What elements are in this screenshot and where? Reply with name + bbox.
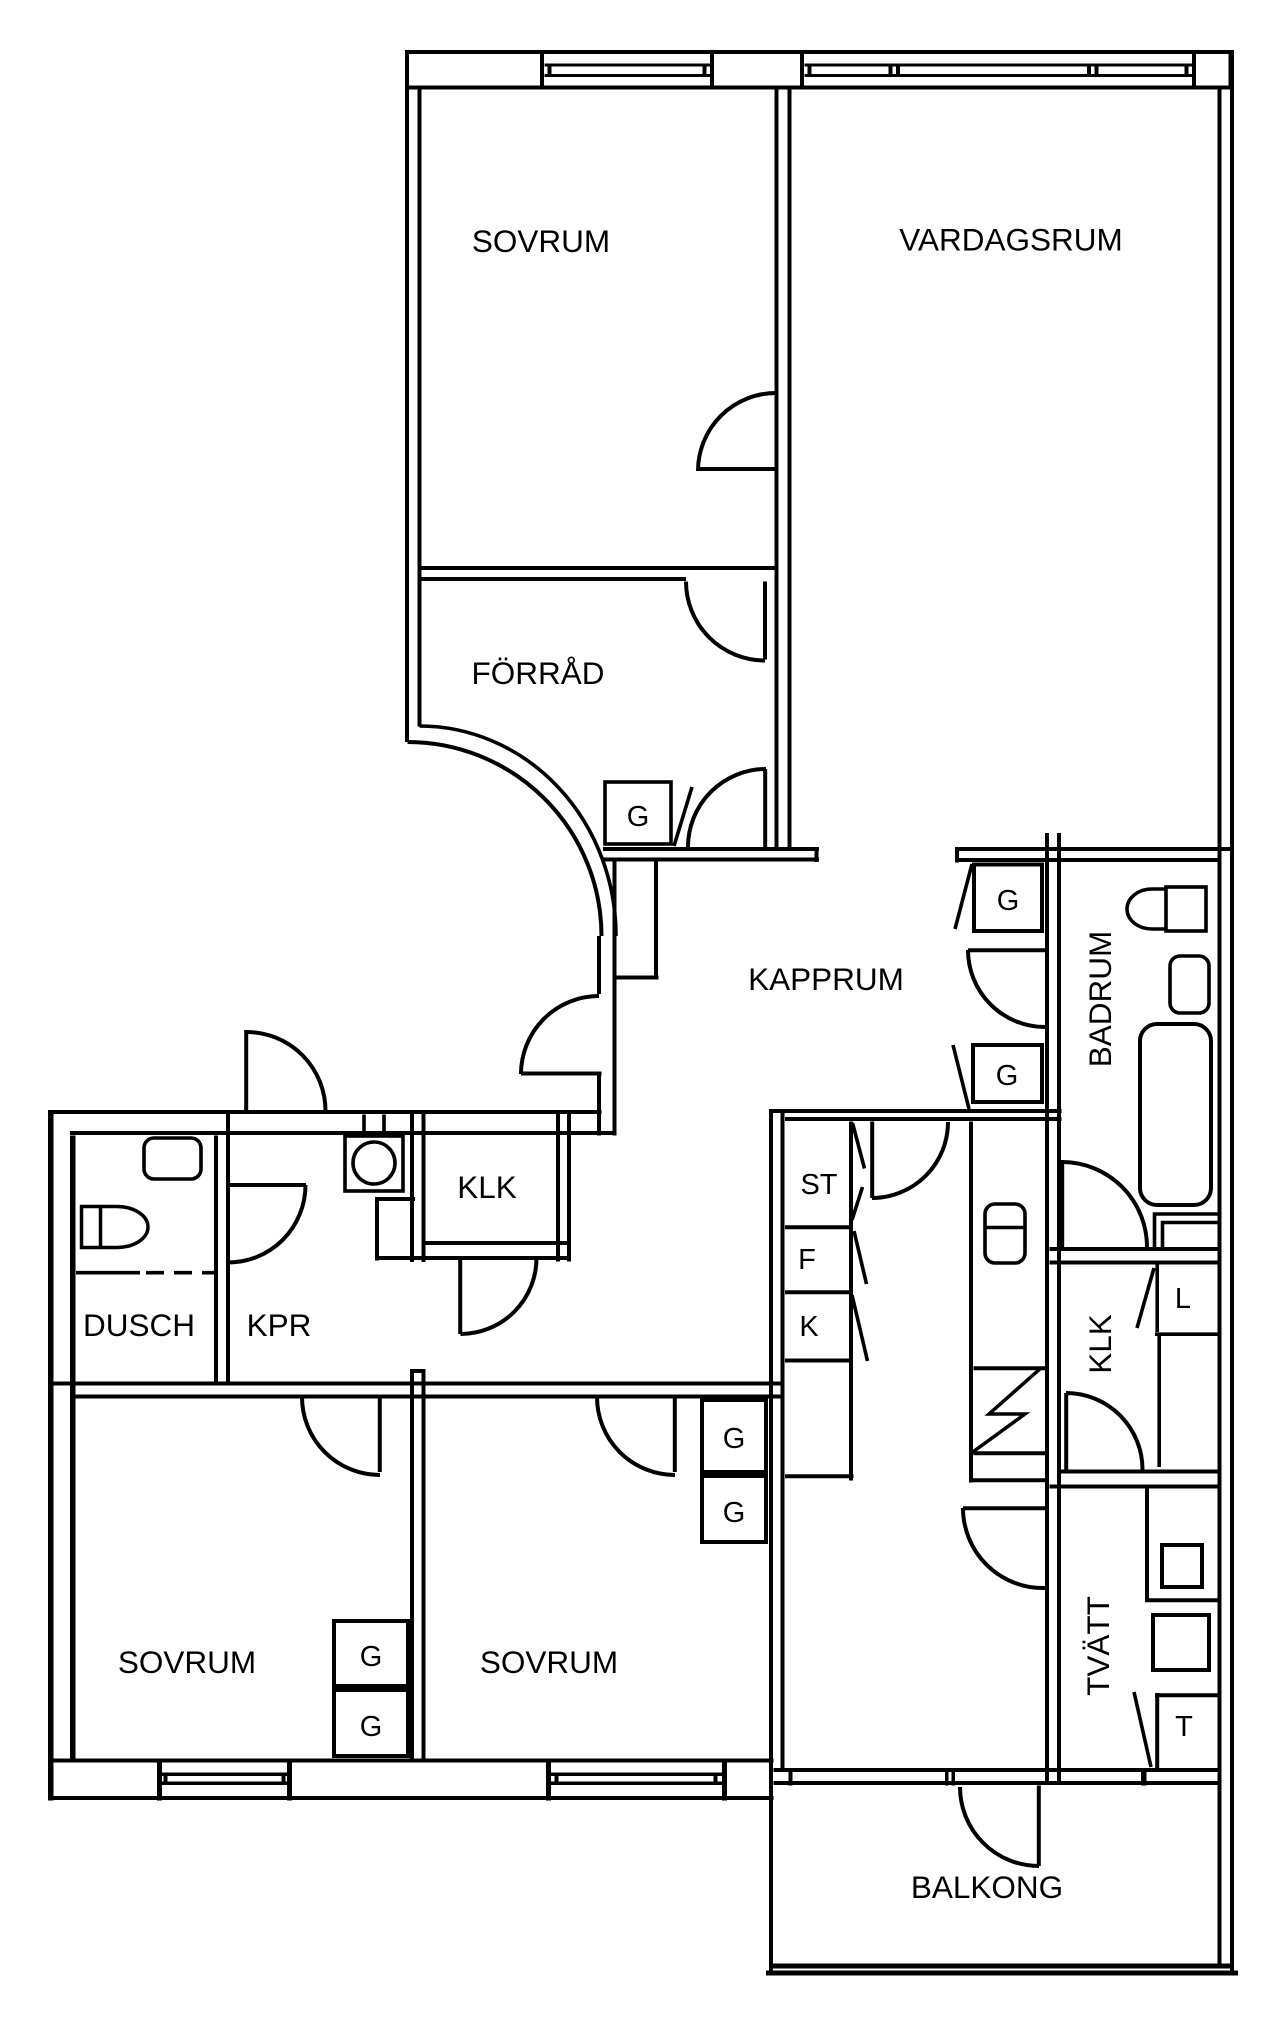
svg-text:TVÄTT: TVÄTT <box>1080 1596 1116 1696</box>
svg-text:T: T <box>1175 1711 1193 1743</box>
svg-text:G: G <box>997 885 1020 917</box>
svg-text:KLK: KLK <box>457 1169 517 1205</box>
svg-text:F: F <box>798 1244 816 1276</box>
svg-text:SOVRUM: SOVRUM <box>480 1644 618 1680</box>
svg-text:G: G <box>360 1641 383 1673</box>
svg-text:SOVRUM: SOVRUM <box>472 223 610 259</box>
svg-text:FÖRRÅD: FÖRRÅD <box>472 655 605 691</box>
svg-text:L: L <box>1175 1283 1191 1315</box>
svg-text:BADRUM: BADRUM <box>1082 931 1118 1068</box>
svg-text:G: G <box>723 1423 746 1455</box>
svg-text:G: G <box>627 801 650 833</box>
svg-text:VARDAGSRUM: VARDAGSRUM <box>899 222 1122 258</box>
svg-text:KPR: KPR <box>247 1307 312 1343</box>
svg-text:ST: ST <box>800 1169 837 1201</box>
svg-text:DUSCH: DUSCH <box>83 1307 195 1343</box>
svg-text:SOVRUM: SOVRUM <box>118 1644 256 1680</box>
svg-text:KLK: KLK <box>1082 1314 1118 1374</box>
svg-text:KAPPRUM: KAPPRUM <box>748 961 904 997</box>
svg-text:G: G <box>996 1060 1019 1092</box>
svg-text:G: G <box>360 1711 383 1743</box>
svg-text:K: K <box>799 1311 819 1343</box>
svg-text:BALKONG: BALKONG <box>911 1869 1063 1905</box>
svg-text:G: G <box>723 1497 746 1529</box>
